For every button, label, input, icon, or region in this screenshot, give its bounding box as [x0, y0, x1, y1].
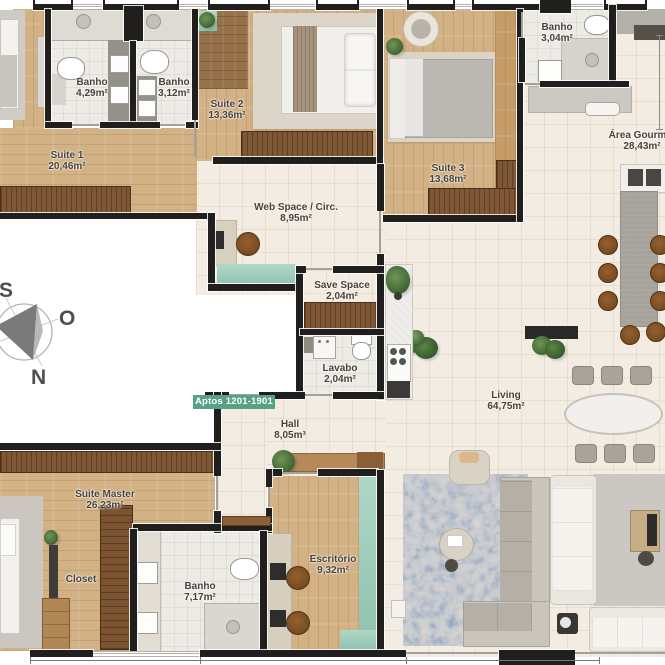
svg-text:N: N [31, 366, 46, 389]
svg-text:O: O [59, 307, 75, 330]
svg-text:S: S [0, 279, 13, 302]
